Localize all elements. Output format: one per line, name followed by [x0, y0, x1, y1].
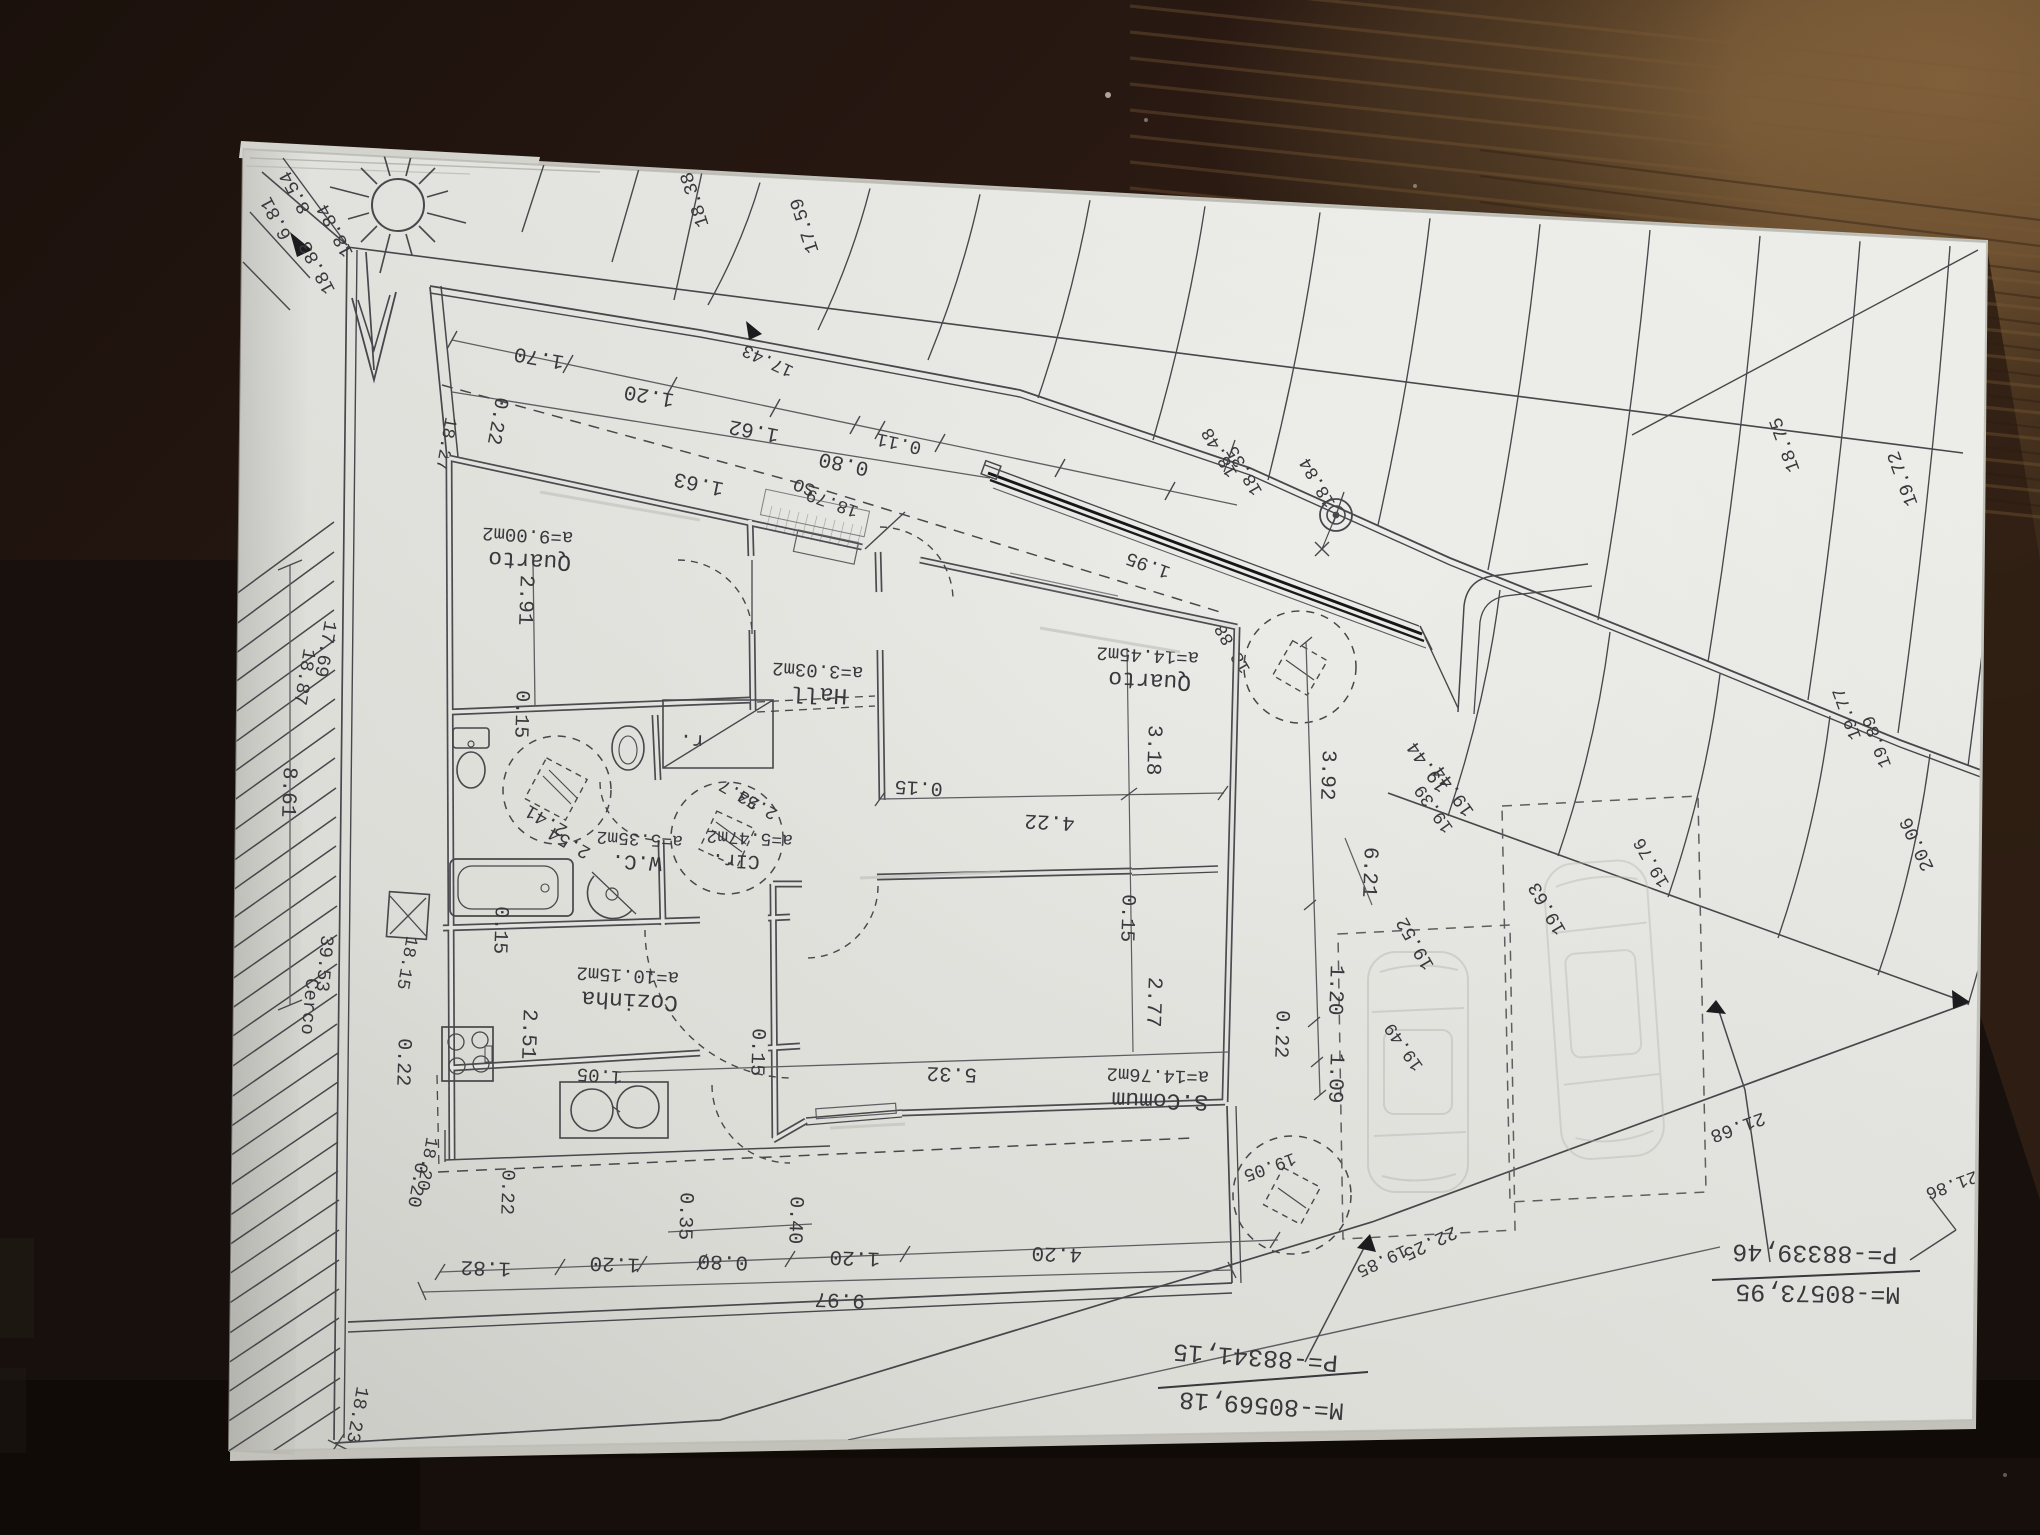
svg-text:r.: r. [679, 728, 704, 752]
svg-text:0.15: 0.15 [508, 690, 533, 739]
svg-text:0.22: 0.22 [390, 1038, 415, 1087]
svg-text:1.20: 1.20 [1322, 965, 1347, 1016]
svg-text:2.91: 2.91 [512, 575, 537, 626]
svg-text:0.15: 0.15 [744, 1028, 769, 1077]
svg-text:6.21: 6.21 [1356, 847, 1381, 898]
svg-text:0.22: 0.22 [1268, 1010, 1293, 1059]
svg-text:4.22: 4.22 [1024, 808, 1076, 834]
svg-text:P=-88339,46: P=-88339,46 [1732, 1237, 1898, 1269]
svg-text:0.35: 0.35 [672, 1192, 697, 1241]
svg-text:Quarto: Quarto [488, 545, 572, 575]
svg-text:0.40: 0.40 [782, 1196, 807, 1245]
svg-text:8.61: 8.61 [275, 767, 300, 818]
svg-text:2.51: 2.51 [515, 1009, 540, 1060]
svg-text:0.15: 0.15 [1114, 894, 1139, 943]
svg-text:1.82: 1.82 [460, 1254, 511, 1279]
svg-text:1.09: 1.09 [1322, 1053, 1347, 1104]
svg-text:5.32: 5.32 [926, 1060, 977, 1085]
svg-text:Cozinha: Cozinha [581, 984, 679, 1015]
svg-text:0.80: 0.80 [697, 1248, 748, 1273]
svg-text:S.Comum: S.Comum [1111, 1085, 1208, 1114]
svg-text:Hall: Hall [791, 680, 848, 709]
svg-text:9.97: 9.97 [814, 1286, 865, 1311]
svg-text:W.C.: W.C. [611, 848, 663, 874]
svg-text:3.18: 3.18 [1140, 725, 1165, 776]
svg-text:3.92: 3.92 [1314, 750, 1339, 801]
svg-text:a=14.76m2: a=14.76m2 [1106, 1062, 1209, 1088]
svg-text:0.15: 0.15 [487, 906, 512, 955]
svg-text:2.77: 2.77 [1140, 977, 1165, 1028]
svg-text:Quarto: Quarto [1108, 665, 1192, 695]
svg-text:CIr.: CIr. [711, 847, 760, 872]
svg-text:1.20: 1.20 [829, 1244, 880, 1269]
svg-text:4.20: 4.20 [1031, 1240, 1082, 1265]
svg-text:M=-80573,95: M=-80573,95 [1735, 1277, 1901, 1309]
svg-text:0.15: 0.15 [894, 774, 943, 799]
svg-text:1.05: 1.05 [576, 1062, 623, 1087]
svg-text:1.20: 1.20 [589, 1250, 640, 1275]
svg-text:0.22: 0.22 [495, 1169, 519, 1215]
